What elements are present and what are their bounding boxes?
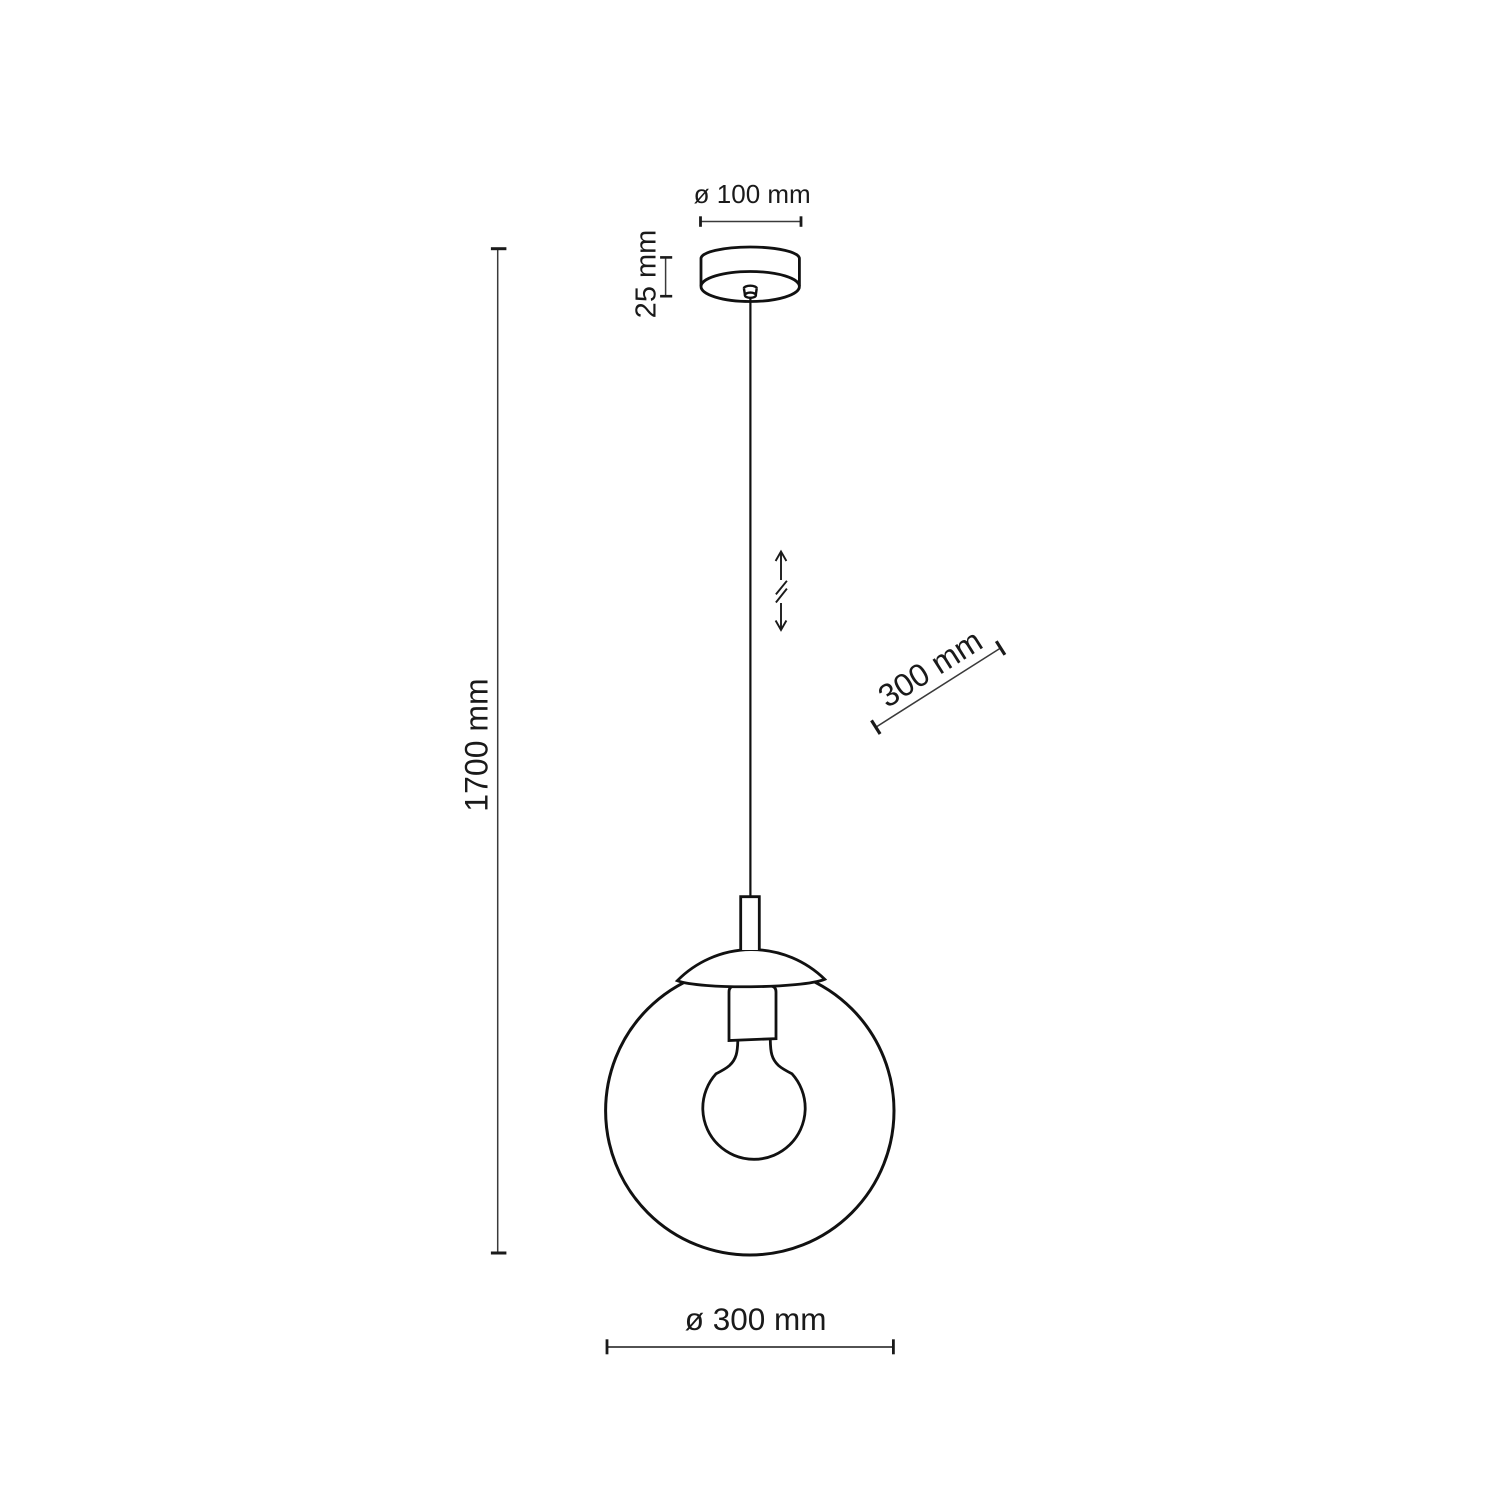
svg-text:1700 mm: 1700 mm: [459, 678, 495, 811]
svg-text:ø 100 mm: ø 100 mm: [694, 179, 811, 209]
svg-text:25 mm: 25 mm: [631, 230, 663, 319]
svg-text:ø 300 mm: ø 300 mm: [685, 1301, 827, 1337]
